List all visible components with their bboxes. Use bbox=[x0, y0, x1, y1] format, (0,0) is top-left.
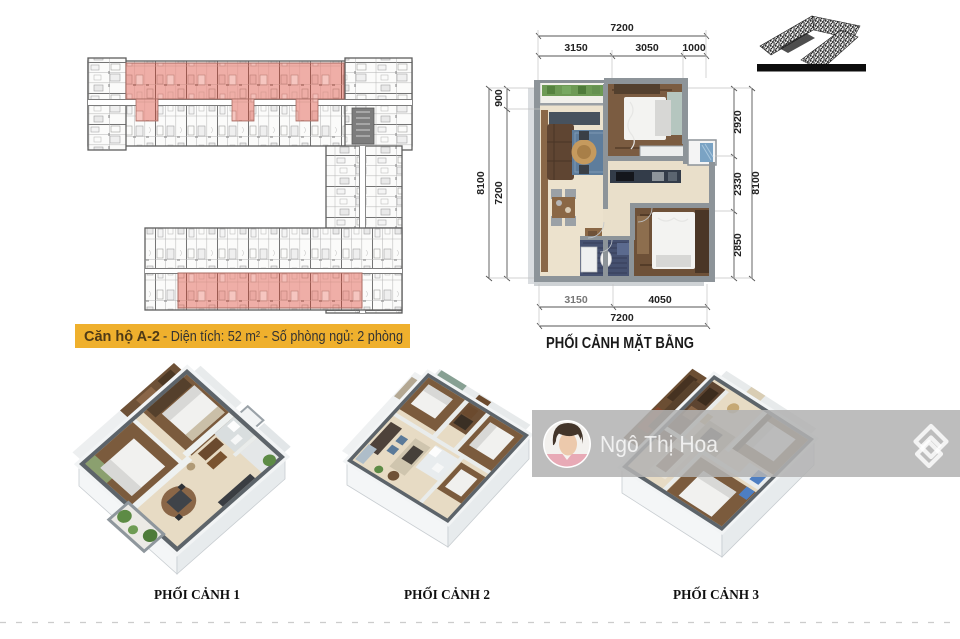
svg-text:4050: 4050 bbox=[648, 294, 672, 306]
svg-text:1000: 1000 bbox=[682, 42, 706, 54]
svg-text:Căn hộ A-2: Căn hộ A-2 bbox=[84, 329, 160, 345]
svg-text:3050: 3050 bbox=[635, 42, 659, 54]
svg-text:2850: 2850 bbox=[732, 233, 744, 257]
svg-text:2330: 2330 bbox=[732, 172, 744, 196]
svg-text:8100: 8100 bbox=[475, 171, 487, 195]
svg-text:2920: 2920 bbox=[732, 110, 744, 134]
svg-text:8100: 8100 bbox=[750, 171, 762, 195]
svg-text:7200: 7200 bbox=[493, 181, 505, 205]
svg-text:900: 900 bbox=[493, 89, 505, 107]
svg-text:PHỐI CẢNH 1: PHỐI CẢNH 1 bbox=[154, 587, 240, 602]
svg-text:7200: 7200 bbox=[610, 22, 634, 34]
svg-text:3150: 3150 bbox=[564, 294, 588, 306]
svg-text:PHỐI CẢNH 3: PHỐI CẢNH 3 bbox=[673, 587, 759, 602]
svg-text:7200: 7200 bbox=[610, 312, 634, 324]
svg-text:- Diện tích: 52 m² - Số phòng: - Diện tích: 52 m² - Số phòng ngủ: 2 phò… bbox=[163, 329, 403, 345]
svg-text:3150: 3150 bbox=[564, 42, 588, 54]
svg-text:PHỐI CẢNH MẶT BẰNG: PHỐI CẢNH MẶT BẰNG bbox=[546, 332, 694, 352]
svg-text:PHỐI CẢNH 2: PHỐI CẢNH 2 bbox=[404, 587, 490, 602]
svg-text:Ngô Thị Hoa: Ngô Thị Hoa bbox=[600, 431, 718, 457]
